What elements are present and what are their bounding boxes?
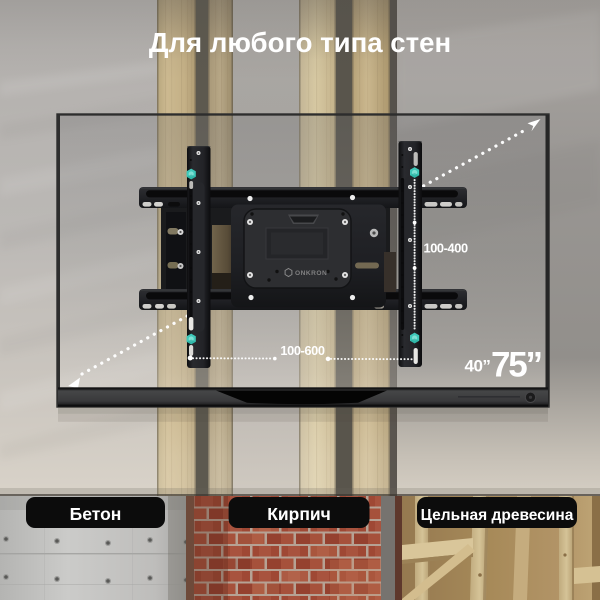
svg-text:100-400: 100-400 [424, 241, 468, 256]
svg-text:Бетон: Бетон [70, 504, 122, 524]
svg-text:Для любого типа стен: Для любого типа стен [149, 27, 451, 58]
svg-text:Цельная древесина: Цельная древесина [421, 507, 574, 524]
svg-text:75”: 75” [491, 346, 541, 385]
svg-text:Кирпич: Кирпич [267, 504, 331, 524]
svg-text:40”: 40” [465, 357, 491, 376]
svg-text:ONKRON: ONKRON [295, 270, 327, 277]
svg-text:100-600: 100-600 [280, 343, 324, 358]
